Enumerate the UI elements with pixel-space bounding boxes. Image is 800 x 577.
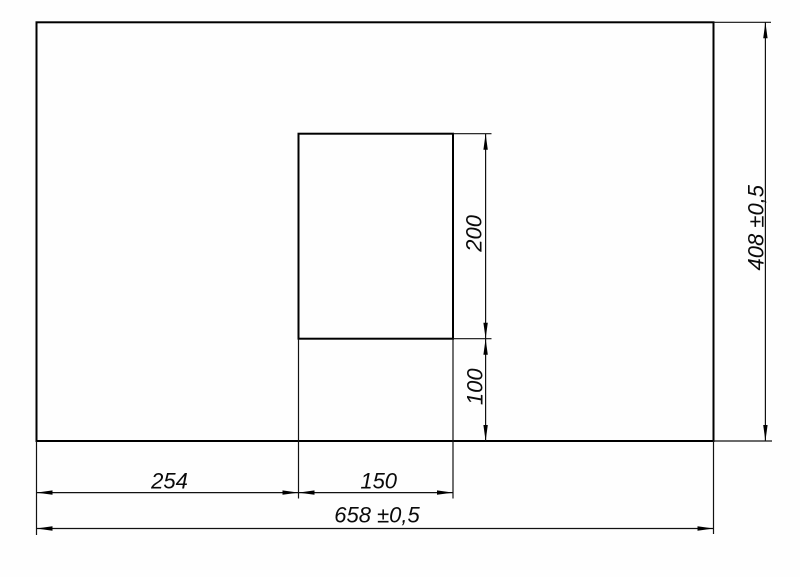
svg-text:254: 254 (150, 469, 188, 494)
svg-text:200: 200 (461, 214, 486, 252)
svg-text:100: 100 (462, 368, 487, 405)
svg-text:408 ±0,5: 408 ±0,5 (744, 184, 769, 270)
svg-text:150: 150 (360, 469, 397, 494)
svg-text:658 ±0,5: 658 ±0,5 (334, 503, 420, 528)
